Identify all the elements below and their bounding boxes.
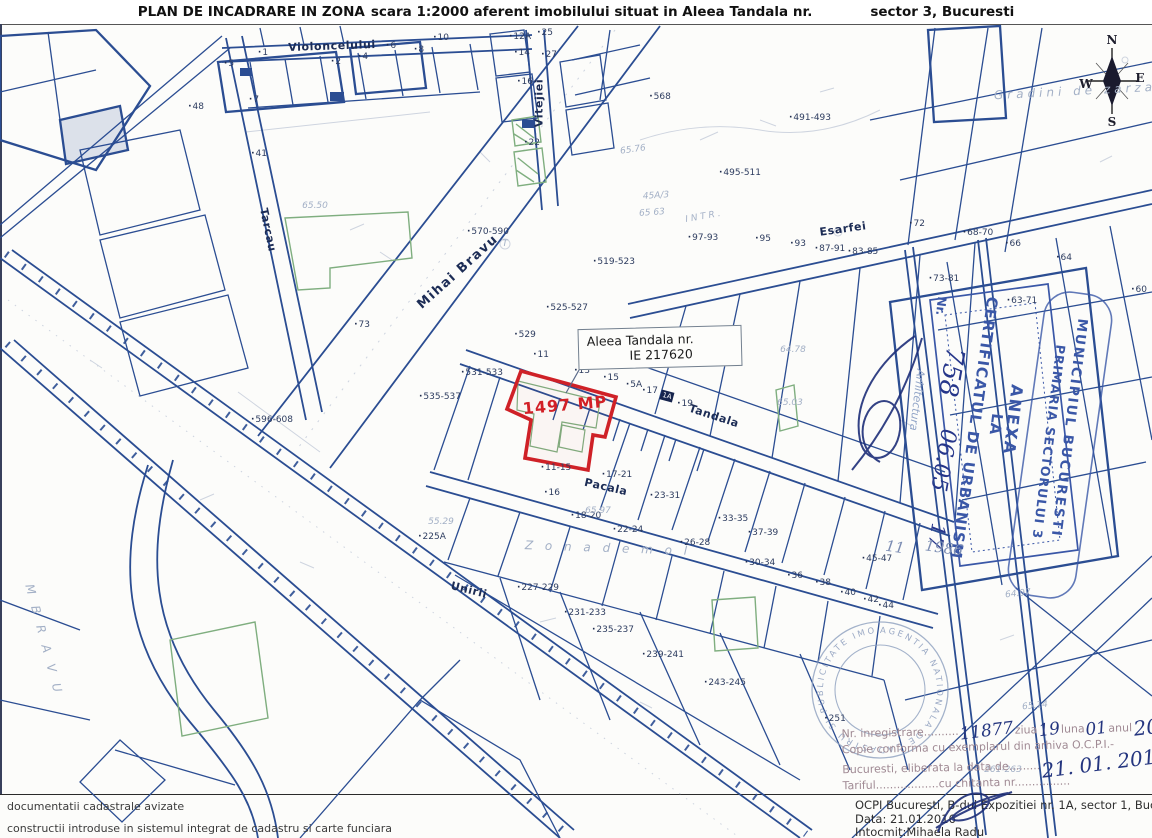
signature-scribble-footer (936, 792, 1012, 832)
signatures-overlay (0, 0, 1152, 838)
signature-scribble-right (852, 336, 922, 470)
scanned-map-page: PLAN DE INCADRARE IN ZONA scara 1:2000 a… (0, 0, 1152, 838)
